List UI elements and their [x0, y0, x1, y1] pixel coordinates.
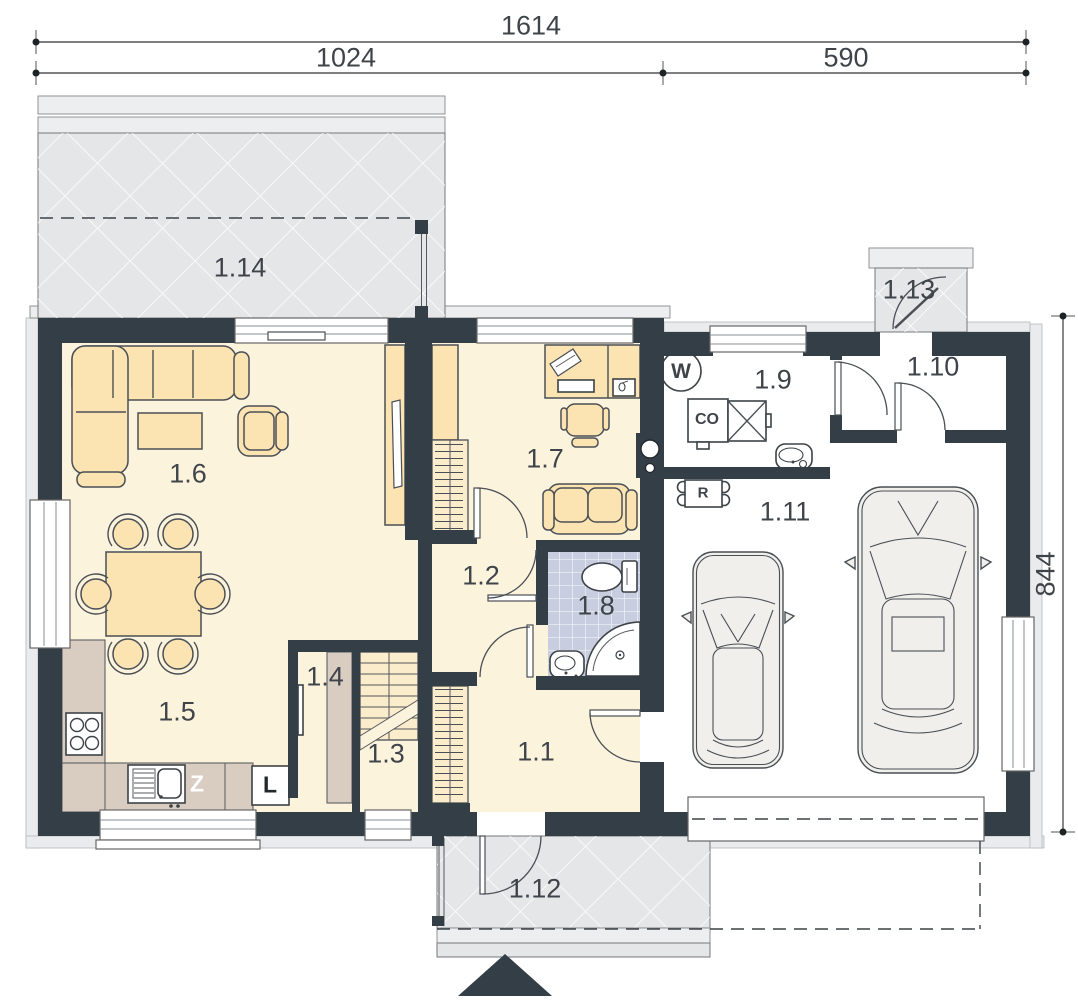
car-large: [845, 487, 991, 773]
stair-window: [365, 810, 411, 840]
terrace-post: [415, 306, 428, 318]
cabinet: [432, 345, 458, 440]
washbasin-icon: [550, 651, 584, 678]
porch-step: [437, 928, 710, 943]
patio-glazing: [235, 318, 388, 343]
front-porch: [432, 836, 710, 996]
armchair: [238, 406, 288, 456]
hall-wardrobe: [432, 686, 468, 803]
porch-step: [437, 943, 710, 957]
garage-window: [1002, 617, 1034, 771]
garage-door: [688, 797, 984, 841]
boiler-icon: [688, 399, 728, 442]
staircase: [360, 652, 418, 750]
floor-plan-drawing: [0, 0, 1078, 1000]
chimney-flue: [636, 433, 664, 478]
cooktop-icon: [66, 713, 102, 755]
left-window: [30, 500, 70, 648]
fridge-icon: [252, 766, 289, 805]
side-porch: [869, 248, 973, 332]
floor-plan-page: 1614 1024 590 844 1.14 1.6 1.7 1.2 1.8 1…: [0, 0, 1078, 1000]
terrace: [38, 96, 445, 318]
water-heater-icon: [661, 351, 701, 391]
distributor-icon: [678, 480, 730, 507]
utility-sink-icon: [776, 444, 812, 469]
utility-window: [710, 326, 806, 352]
coffee-table: [138, 413, 202, 449]
desk: [545, 345, 640, 398]
wardrobe: [432, 440, 468, 540]
kitchen-window: [96, 810, 260, 849]
mousepad-icon: [613, 379, 635, 396]
keyboard-icon: [558, 380, 594, 392]
toilet-icon: [582, 561, 637, 592]
entrance-arrow: [458, 954, 552, 996]
office-sofa: [543, 484, 637, 534]
tv-icon: [392, 400, 402, 488]
dining-table: [106, 552, 201, 636]
heat-exchanger-icon: [728, 401, 771, 441]
car-small: [682, 552, 794, 768]
office-window: [477, 318, 633, 343]
terrace-post: [415, 220, 428, 234]
